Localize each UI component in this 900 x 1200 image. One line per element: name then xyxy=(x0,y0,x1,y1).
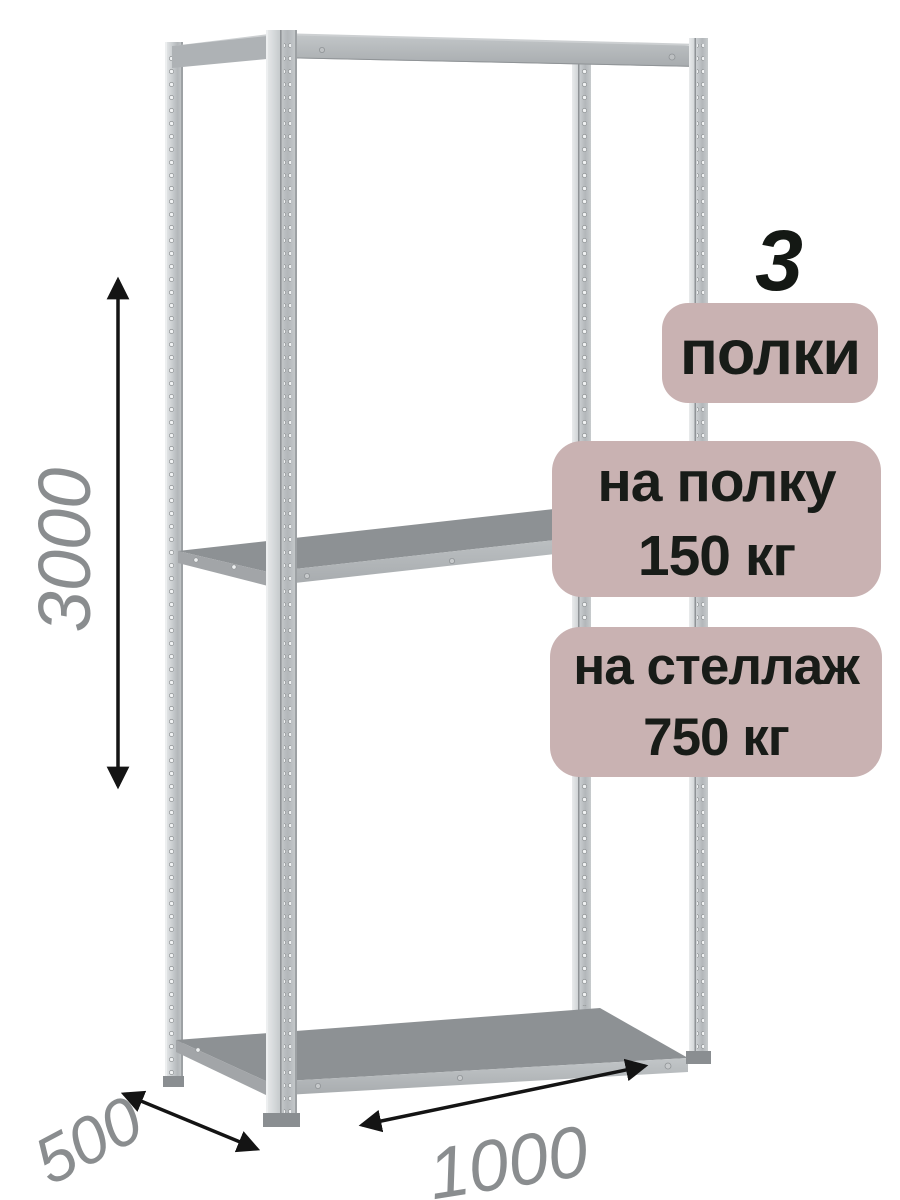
rack-post-front-left xyxy=(263,30,300,1127)
rack-shelf-bottom xyxy=(176,1008,688,1096)
per-rack-load-line1: на стеллаж xyxy=(573,631,859,702)
rivet xyxy=(665,1063,671,1069)
per-shelf-load-line2: 150 кг xyxy=(638,519,795,593)
shelf-count-label: полки xyxy=(680,317,860,389)
rack-illustration: 3000 500 1000 xyxy=(0,0,900,1200)
post-seam xyxy=(280,30,282,1127)
rack-post-back-left xyxy=(163,42,184,1087)
rivet xyxy=(304,573,309,578)
post-shadow-edge xyxy=(295,30,297,1127)
post-perforations xyxy=(169,48,176,1082)
per-rack-load-badge: на стеллаж 750 кг xyxy=(550,627,882,777)
width-dimension-label: 1000 xyxy=(423,1111,594,1200)
post-shadow-edge xyxy=(181,42,183,1087)
bolt-hole xyxy=(196,1048,200,1052)
product-image: 3000 500 1000 3 полки на полку 150 кг на… xyxy=(0,0,900,1200)
per-shelf-load-line1: на полку xyxy=(597,445,835,519)
shelf-count-label-badge: полки xyxy=(662,303,878,403)
post-highlight xyxy=(266,30,268,1127)
rivet xyxy=(315,1083,320,1088)
per-rack-load-line2: 750 кг xyxy=(643,702,789,773)
bolt-hole xyxy=(232,565,236,569)
bolt-hole xyxy=(194,558,198,562)
post-perforations xyxy=(284,36,291,1122)
post-highlight xyxy=(165,42,167,1087)
height-dimension-label: 3000 xyxy=(23,468,106,633)
rivet xyxy=(669,54,675,60)
rivet xyxy=(457,1075,462,1080)
post-foot xyxy=(163,1076,184,1087)
rivet xyxy=(449,558,454,563)
post-foot xyxy=(263,1113,300,1127)
rivet xyxy=(319,47,324,52)
post-foot xyxy=(686,1051,711,1064)
shelf-count: 3 xyxy=(727,218,831,304)
rack-shelf-top xyxy=(172,33,700,68)
per-shelf-load-badge: на полку 150 кг xyxy=(552,441,881,597)
